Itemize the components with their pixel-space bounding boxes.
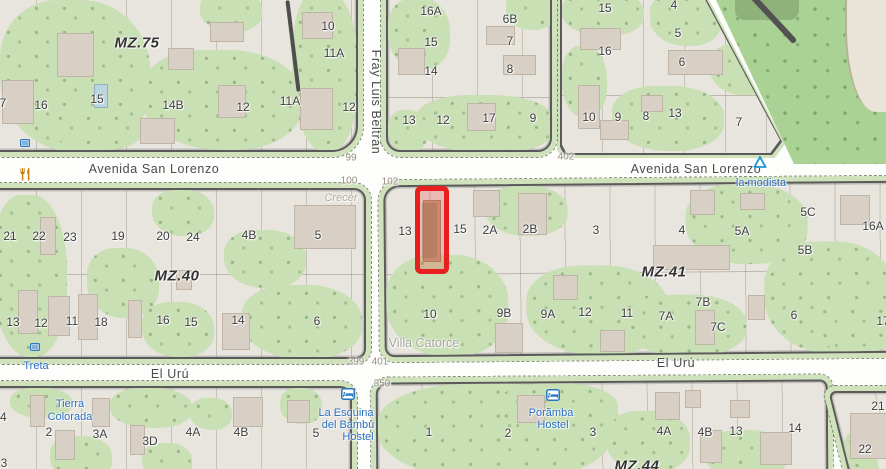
lot-number: 17 xyxy=(876,314,886,328)
lot-number: 5A xyxy=(735,224,750,238)
block-tierra-colorada xyxy=(0,386,352,469)
highlighted-parcel xyxy=(415,186,449,274)
lot-number: 2B xyxy=(523,222,538,236)
lot-number: 3 xyxy=(590,425,597,439)
building xyxy=(690,190,715,215)
lot-number: 10 xyxy=(423,307,436,321)
block-label: MZ.40 xyxy=(154,268,199,285)
building xyxy=(287,400,310,423)
parcel-building xyxy=(422,203,437,258)
lot-number: 10 xyxy=(582,110,595,124)
lot-number: 6 xyxy=(791,308,798,322)
building xyxy=(668,50,723,75)
lot-number: 10 xyxy=(321,19,334,33)
lot-number: 3D xyxy=(142,434,157,448)
hostel-icon xyxy=(546,389,560,401)
grass-patch xyxy=(142,302,214,357)
lot-number: 7B xyxy=(696,295,711,309)
lot-number: 14B xyxy=(162,98,183,112)
building xyxy=(30,395,45,427)
board-icon xyxy=(30,343,40,351)
lot-number: 20 xyxy=(156,229,169,243)
lot-number: 4 xyxy=(671,0,678,12)
lot-number: 19 xyxy=(111,229,124,243)
house-number: 102 xyxy=(382,177,399,188)
lot-number: 9B xyxy=(497,306,512,320)
street-name: Avenida San Lorenzo xyxy=(89,162,220,176)
lot-number: 7 xyxy=(736,115,743,129)
lot-number: 5 xyxy=(313,426,320,440)
street-name: El Urú xyxy=(151,367,189,381)
poi-label: Hostel xyxy=(537,419,568,431)
street-name: El Urú xyxy=(657,356,695,370)
lot-number: 4A xyxy=(186,425,201,439)
grass-patch xyxy=(52,110,142,150)
building xyxy=(730,400,750,418)
building xyxy=(168,48,194,70)
building xyxy=(740,193,765,210)
grass-patch xyxy=(110,388,192,428)
lot-number: 22 xyxy=(32,229,45,243)
lot-number: 14 xyxy=(788,421,801,435)
lot-number: 11A xyxy=(324,46,344,60)
lot-number: 16A xyxy=(862,219,883,233)
building xyxy=(748,295,765,320)
lot-number: 11 xyxy=(621,306,633,320)
lot-number: 13 xyxy=(398,224,411,238)
lot-number: 5B xyxy=(798,243,813,257)
lot-number: 16 xyxy=(156,313,169,327)
lot-number: 2 xyxy=(46,425,53,439)
lot-number: 11A xyxy=(280,94,300,108)
poi-label: La Esquina xyxy=(318,407,373,419)
poi-label: Tierra xyxy=(56,398,84,410)
lot-number: 11 xyxy=(66,314,78,328)
lot-number: 8 xyxy=(643,109,650,123)
building xyxy=(294,205,356,249)
building xyxy=(128,300,142,338)
lot-number: 6B xyxy=(503,12,518,26)
lot-number: 12 xyxy=(342,100,355,114)
forest-corner-wedge xyxy=(845,0,886,112)
lot-number: 5C xyxy=(800,205,815,219)
lot-number: 4B xyxy=(698,425,713,439)
lot-number: 24 xyxy=(0,410,7,424)
building xyxy=(553,275,578,300)
poi-label: Colorada xyxy=(48,411,93,423)
building xyxy=(495,323,523,353)
building xyxy=(600,330,625,352)
lot-number: 3A xyxy=(93,427,108,441)
lot-number: 7C xyxy=(710,320,725,334)
poi-label: Hostel xyxy=(342,431,373,443)
street-name: Avenida San Lorenzo xyxy=(631,162,762,176)
lot-number: 13 xyxy=(668,106,681,120)
house-number: 100 xyxy=(341,176,358,187)
lot-number: 15 xyxy=(598,1,611,15)
lot-number: 7A xyxy=(659,309,674,323)
lot-number: 3 xyxy=(1,456,8,469)
building xyxy=(760,432,792,465)
building xyxy=(300,88,333,130)
lot-number: 2 xyxy=(505,426,512,440)
house-number: 401 xyxy=(372,357,389,368)
lot-number: 15 xyxy=(424,35,437,49)
poi-label: Treta xyxy=(23,360,48,372)
lot-number: 22 xyxy=(858,442,871,456)
building xyxy=(473,190,500,217)
house-number: 99 xyxy=(345,153,356,164)
lot-number: 6 xyxy=(679,55,686,69)
building xyxy=(233,397,263,427)
building xyxy=(210,22,244,42)
street-name: Fray Luis Beltrán xyxy=(369,50,383,155)
lot-number: 8 xyxy=(507,62,514,76)
lot-number: 4A xyxy=(657,424,672,438)
building xyxy=(2,80,34,124)
lot-number: 17 xyxy=(482,111,495,125)
lot-number: 21 xyxy=(871,399,884,413)
poi-label: del Bambú xyxy=(322,419,375,431)
lot-number: 4B xyxy=(234,425,249,439)
building xyxy=(140,118,175,144)
lot-number: 12 xyxy=(436,113,449,127)
place-label: Villa Catorce xyxy=(389,336,460,350)
lot-number: 14 xyxy=(424,64,437,78)
lot-number: 7 xyxy=(507,34,514,48)
lot-number: 3 xyxy=(593,223,600,237)
house-number: 350 xyxy=(374,379,391,390)
building xyxy=(655,392,680,420)
lot-number: 16 xyxy=(598,44,611,58)
house-number: 399 xyxy=(348,357,365,368)
lot-number: 14 xyxy=(231,313,244,327)
building xyxy=(685,390,701,408)
lot-number: 15 xyxy=(90,92,103,106)
block-label: MZ.41 xyxy=(641,264,686,281)
lot-number: 7 xyxy=(0,96,6,110)
lot-number: 23 xyxy=(63,230,76,244)
lot-number: 13 xyxy=(6,315,19,329)
house-number: 402 xyxy=(558,152,575,163)
building xyxy=(398,48,425,75)
lot-number: 4 xyxy=(679,223,686,237)
lot-number: 12 xyxy=(578,305,591,319)
building xyxy=(55,430,75,460)
lot-number: 12 xyxy=(236,100,249,114)
grass-patch xyxy=(624,294,747,357)
place-label: Crecer xyxy=(324,192,357,204)
lot-number: 2A xyxy=(483,223,498,237)
lot-number: 12 xyxy=(34,316,47,330)
lot-number: 4B xyxy=(242,228,257,242)
lot-number: 13 xyxy=(402,113,415,127)
lot-number: 5 xyxy=(315,228,322,242)
map-canvas[interactable]: 1011A7161514B1211A1216A6B157148131217915… xyxy=(0,0,886,469)
lot-number: 9 xyxy=(530,111,537,125)
viewpoint-icon xyxy=(753,156,767,169)
lot-number: 5 xyxy=(675,26,682,40)
block-label: MZ.75 xyxy=(114,35,159,52)
lot-number: 15 xyxy=(184,315,197,329)
board-icon xyxy=(20,139,30,147)
lot-number: 13 xyxy=(729,424,742,438)
lot-number: 16 xyxy=(34,98,47,112)
building xyxy=(92,398,110,427)
restaurant-icon xyxy=(21,168,34,181)
building xyxy=(57,33,94,77)
lot-number: 16A xyxy=(420,4,441,18)
poi-label: la modista xyxy=(736,177,786,189)
grass-patch xyxy=(242,285,362,359)
lot-number: 1 xyxy=(426,425,433,439)
lot-number: 6 xyxy=(314,314,321,328)
lot-number: 21 xyxy=(3,229,16,243)
lot-number: 18 xyxy=(94,315,107,329)
lot-number: 24 xyxy=(186,230,199,244)
hostel-icon xyxy=(341,388,355,400)
block-label: MZ.44 xyxy=(614,458,659,469)
poi-label: Porãmba xyxy=(529,407,574,419)
lot-number: 9A xyxy=(541,307,556,321)
lot-number: 9 xyxy=(615,110,622,124)
lot-number: 15 xyxy=(453,222,466,236)
